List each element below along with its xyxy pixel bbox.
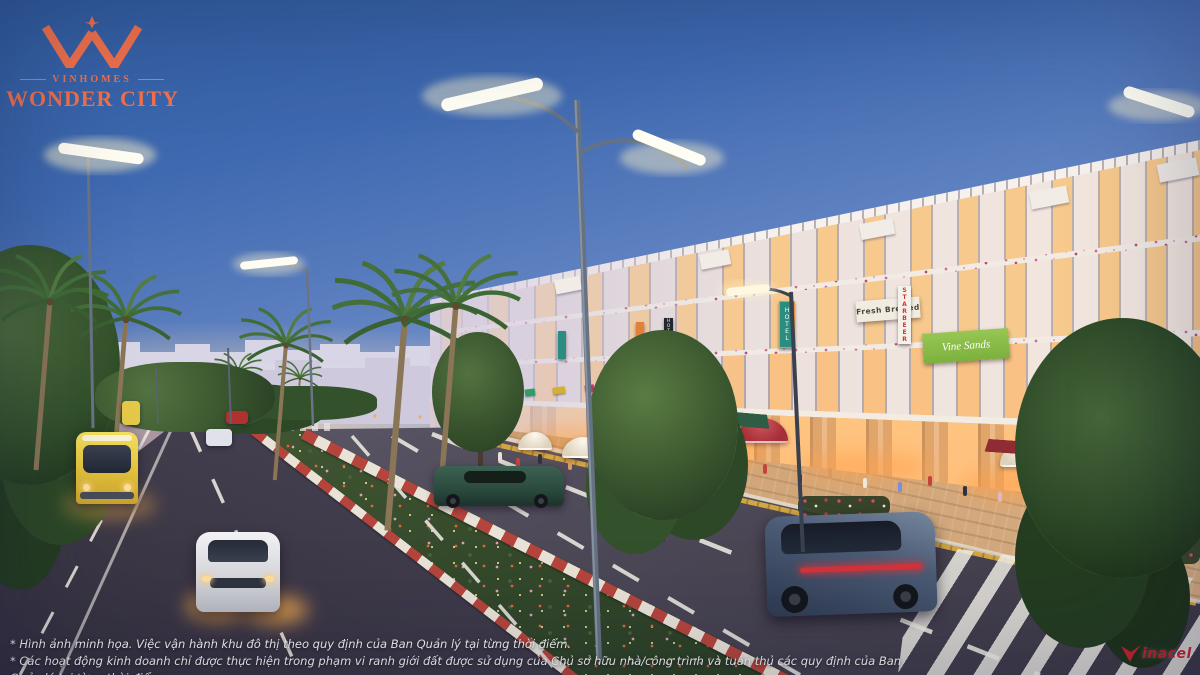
disclaimer-line-2: * Các hoạt động kinh doanh chỉ được thực…: [10, 653, 910, 675]
watermark-text: inacel: [1142, 646, 1192, 662]
logo-dash: [20, 79, 46, 80]
lamp-post-left: [44, 138, 156, 428]
logo-dash: [138, 79, 164, 80]
logo-project-name: WONDER CITY: [6, 86, 178, 112]
lamp-post-mid: [233, 253, 313, 426]
background-lamp-posts: [156, 348, 231, 424]
lamp-top-right: [1108, 85, 1200, 121]
logo-monogram: [36, 14, 148, 68]
vinhomes-wonder-city-logo: VINHOMES WONDER CITY: [6, 14, 178, 112]
logo-brand-row: VINHOMES: [6, 74, 178, 85]
lamp-post-shops: [718, 281, 803, 552]
lamp-post-foreground: [422, 76, 724, 660]
logo-brand-text: VINHOMES: [52, 74, 132, 85]
watermark-bird-icon: [1120, 644, 1142, 664]
vinacel-watermark: inacel: [1120, 644, 1192, 664]
disclaimer-line-1: * Hình ảnh minh họa. Việc vận hành khu đ…: [10, 636, 910, 653]
street-lamps: [0, 0, 1200, 675]
disclaimer-text: * Hình ảnh minh họa. Việc vận hành khu đ…: [10, 636, 910, 675]
vinhomes-wonder-city-render: BOUNJOU Fresh Brewed Vine Sands Lamandin…: [0, 0, 1200, 675]
